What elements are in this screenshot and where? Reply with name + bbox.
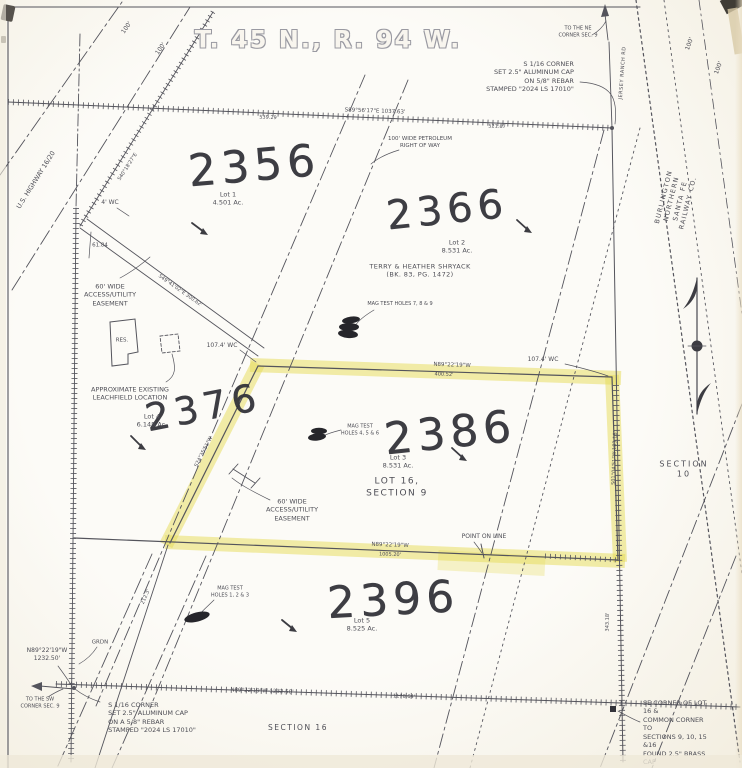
survey-plat-scan: T. 45 N., R. 94 W. 23562366237623862396L…: [0, 0, 742, 768]
easement-label-2: 60' WIDE ACCESS/UTILITY EASEMENT: [266, 497, 318, 522]
dim-61-84: 61.84: [92, 242, 108, 249]
sw-diag-dist: 212.3': [140, 589, 152, 606]
road-bearing: S49°41'02"E 300.62': [157, 273, 203, 308]
rr-100-b: 100': [713, 61, 725, 76]
south-bdy-dist: 1005.20': [379, 551, 401, 558]
scan-edge: [735, 0, 742, 768]
map-annotations: T. 45 N., R. 94 W. 23562366237623862396L…: [0, 0, 742, 768]
mag-test-123: MAG TEST HOLES 1, 2 & 3: [211, 586, 249, 599]
east-bdy-bearing: S01°04'51"W 183.18': [611, 431, 619, 485]
lot2-label: Lot 2 8.531 Ac.: [442, 239, 473, 256]
to-ne-corner: TO THE NE CORNER SEC. 9: [558, 26, 597, 39]
scan-edge: [0, 755, 742, 768]
north-bdy-dist: 400.52': [434, 371, 453, 378]
sw-corner-note: S 1/16 CORNER SET 2.5" ALUMINUM CAP ON A…: [108, 701, 196, 735]
dim-539-29: 539.29: [259, 114, 277, 121]
dim-521-87: 521.87: [488, 123, 506, 130]
dim-1178-64: 1178.64': [393, 693, 415, 700]
rr-100-a: 100': [684, 37, 696, 52]
west-bdy-bearing: S24°35'51"W: [194, 436, 215, 469]
mag-test-789: MAG TEST HOLES 7, 8 & 9: [367, 301, 432, 308]
map-title: T. 45 N., R. 94 W.: [195, 24, 461, 55]
hw-2366: 2366: [384, 178, 511, 242]
hw-2376: 2376: [141, 373, 265, 444]
owner-label: TERRY & HEATHER SHRYACK (BK. 83, PG. 147…: [369, 263, 470, 280]
fence-bearing: S40°18'27"E: [117, 152, 140, 182]
section-16-label: SECTION 16: [268, 723, 328, 733]
scan-edge: [0, 0, 6, 768]
lot16-label: LOT 16, SECTION 9: [366, 476, 428, 499]
to-sw-corner: TO THE SW CORNER SEC. 9: [20, 697, 59, 710]
lot1-label: Lot 1 4.501 Ac.: [213, 191, 244, 208]
us-highway-label: U.S. HIGHWAY 16/20: [15, 150, 57, 211]
wc-107-west: 107.4' WC: [207, 342, 238, 350]
bnsf-label: BURLINGTON NORTHERN SANTA FE RAILWAY CO.: [652, 164, 701, 236]
north-bdy-bearing: N89°22'19"W: [433, 362, 471, 370]
mag-test-456: MAG TEST HOLES 4, 5 & 6: [341, 424, 379, 437]
res-label: RES.: [116, 337, 129, 344]
hwy-100-a: 100': [120, 20, 134, 35]
petroleum-row-label: 100' WIDE PETROLEUM RIGHT OF WAY: [388, 136, 452, 150]
east-line-dist: 343.18': [605, 613, 612, 632]
hwy-100-b: 100': [154, 41, 168, 56]
jersey-ranch-rd-label: JERSEY RANCH RD: [618, 46, 628, 100]
point-on-line-label: POINT ON LINE: [462, 533, 507, 541]
easement-label-1: 60' WIDE ACCESS/UTILITY EASEMENT: [84, 282, 136, 307]
grdn-label: GRDN: [92, 639, 108, 646]
hw-2356: 2356: [186, 132, 322, 200]
wc-4-label: 4' WC: [101, 199, 119, 207]
leachfield-label: APPROXIMATE EXISTING LEACHFIELD LOCATION: [91, 386, 169, 403]
top-line-bearing: S89°56'17"E 1037.63': [345, 107, 406, 116]
sw-distance-label: N89°22'19"W 1232.50': [27, 647, 68, 663]
lot4-label: Lot 4 6.148 Ac.: [137, 413, 168, 430]
south-bdy-bearing: N89°22'19"W: [371, 542, 409, 550]
lot3-label: Lot 3 8.531 Ac.: [383, 454, 414, 471]
section-10-label: SECTION 10: [655, 460, 713, 481]
wc-107-east: 107.4' WC: [528, 356, 559, 364]
lot5-label: Lot 5 8.525 Ac.: [347, 617, 378, 634]
ne-corner-note: S 1/16 CORNER SET 2.5" ALUMINUM CAP ON 5…: [486, 60, 574, 94]
bottom-line-bearing: N89°22'19"W 1232.50': [230, 687, 294, 696]
